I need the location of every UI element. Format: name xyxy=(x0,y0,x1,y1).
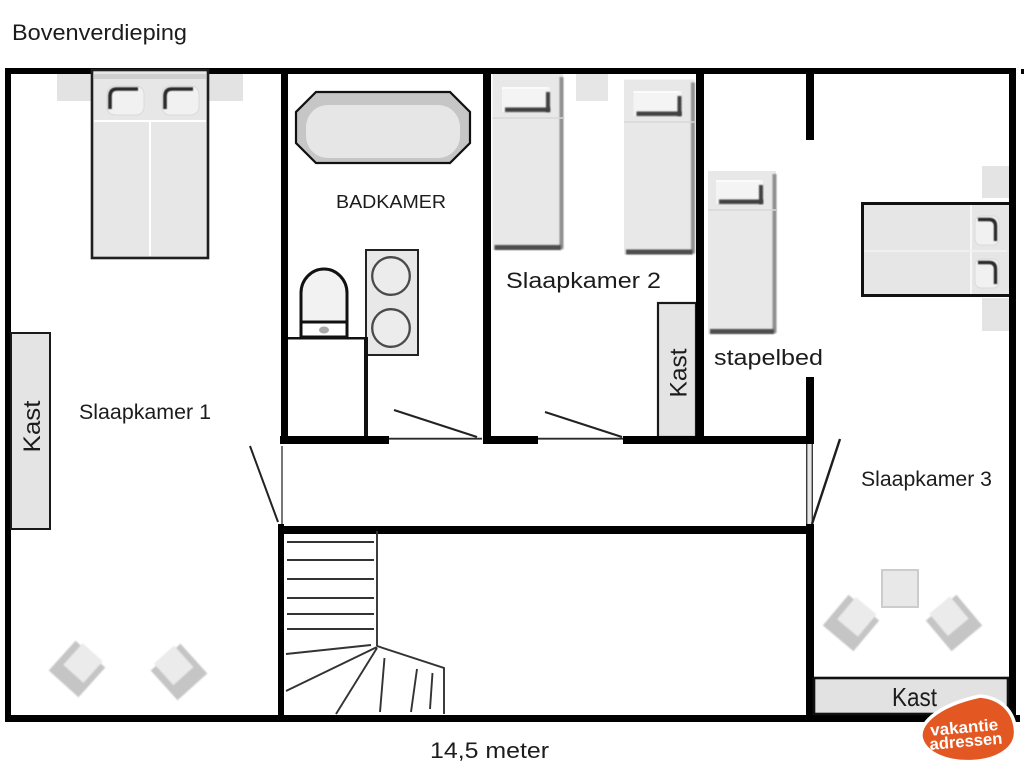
svg-text:14,5 meter: 14,5 meter xyxy=(430,738,549,763)
svg-text:Slaapkamer 2: Slaapkamer 2 xyxy=(506,268,661,293)
svg-text:BADKAMER: BADKAMER xyxy=(336,192,446,212)
svg-text:Kast: Kast xyxy=(666,348,693,397)
svg-text:Kast: Kast xyxy=(892,682,938,712)
svg-text:Slaapkamer 3: Slaapkamer 3 xyxy=(861,468,992,491)
svg-text:Slaapkamer 1: Slaapkamer 1 xyxy=(79,401,211,424)
svg-text:Bovenverdieping: Bovenverdieping xyxy=(12,20,187,45)
svg-text:stapelbed: stapelbed xyxy=(714,345,823,370)
svg-text:Kast: Kast xyxy=(19,400,46,452)
